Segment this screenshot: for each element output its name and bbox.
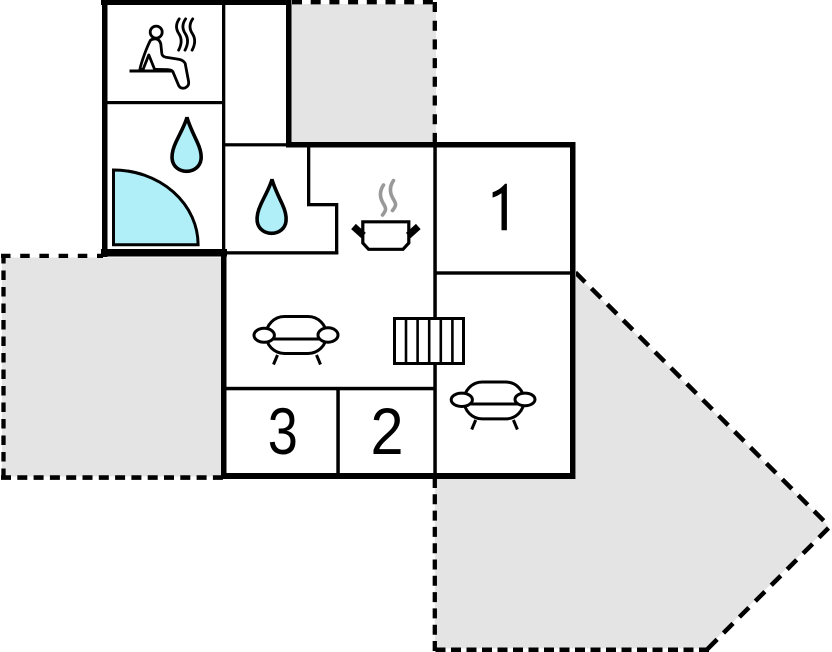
svg-text:3: 3 (268, 394, 298, 468)
svg-text:2: 2 (370, 395, 403, 469)
